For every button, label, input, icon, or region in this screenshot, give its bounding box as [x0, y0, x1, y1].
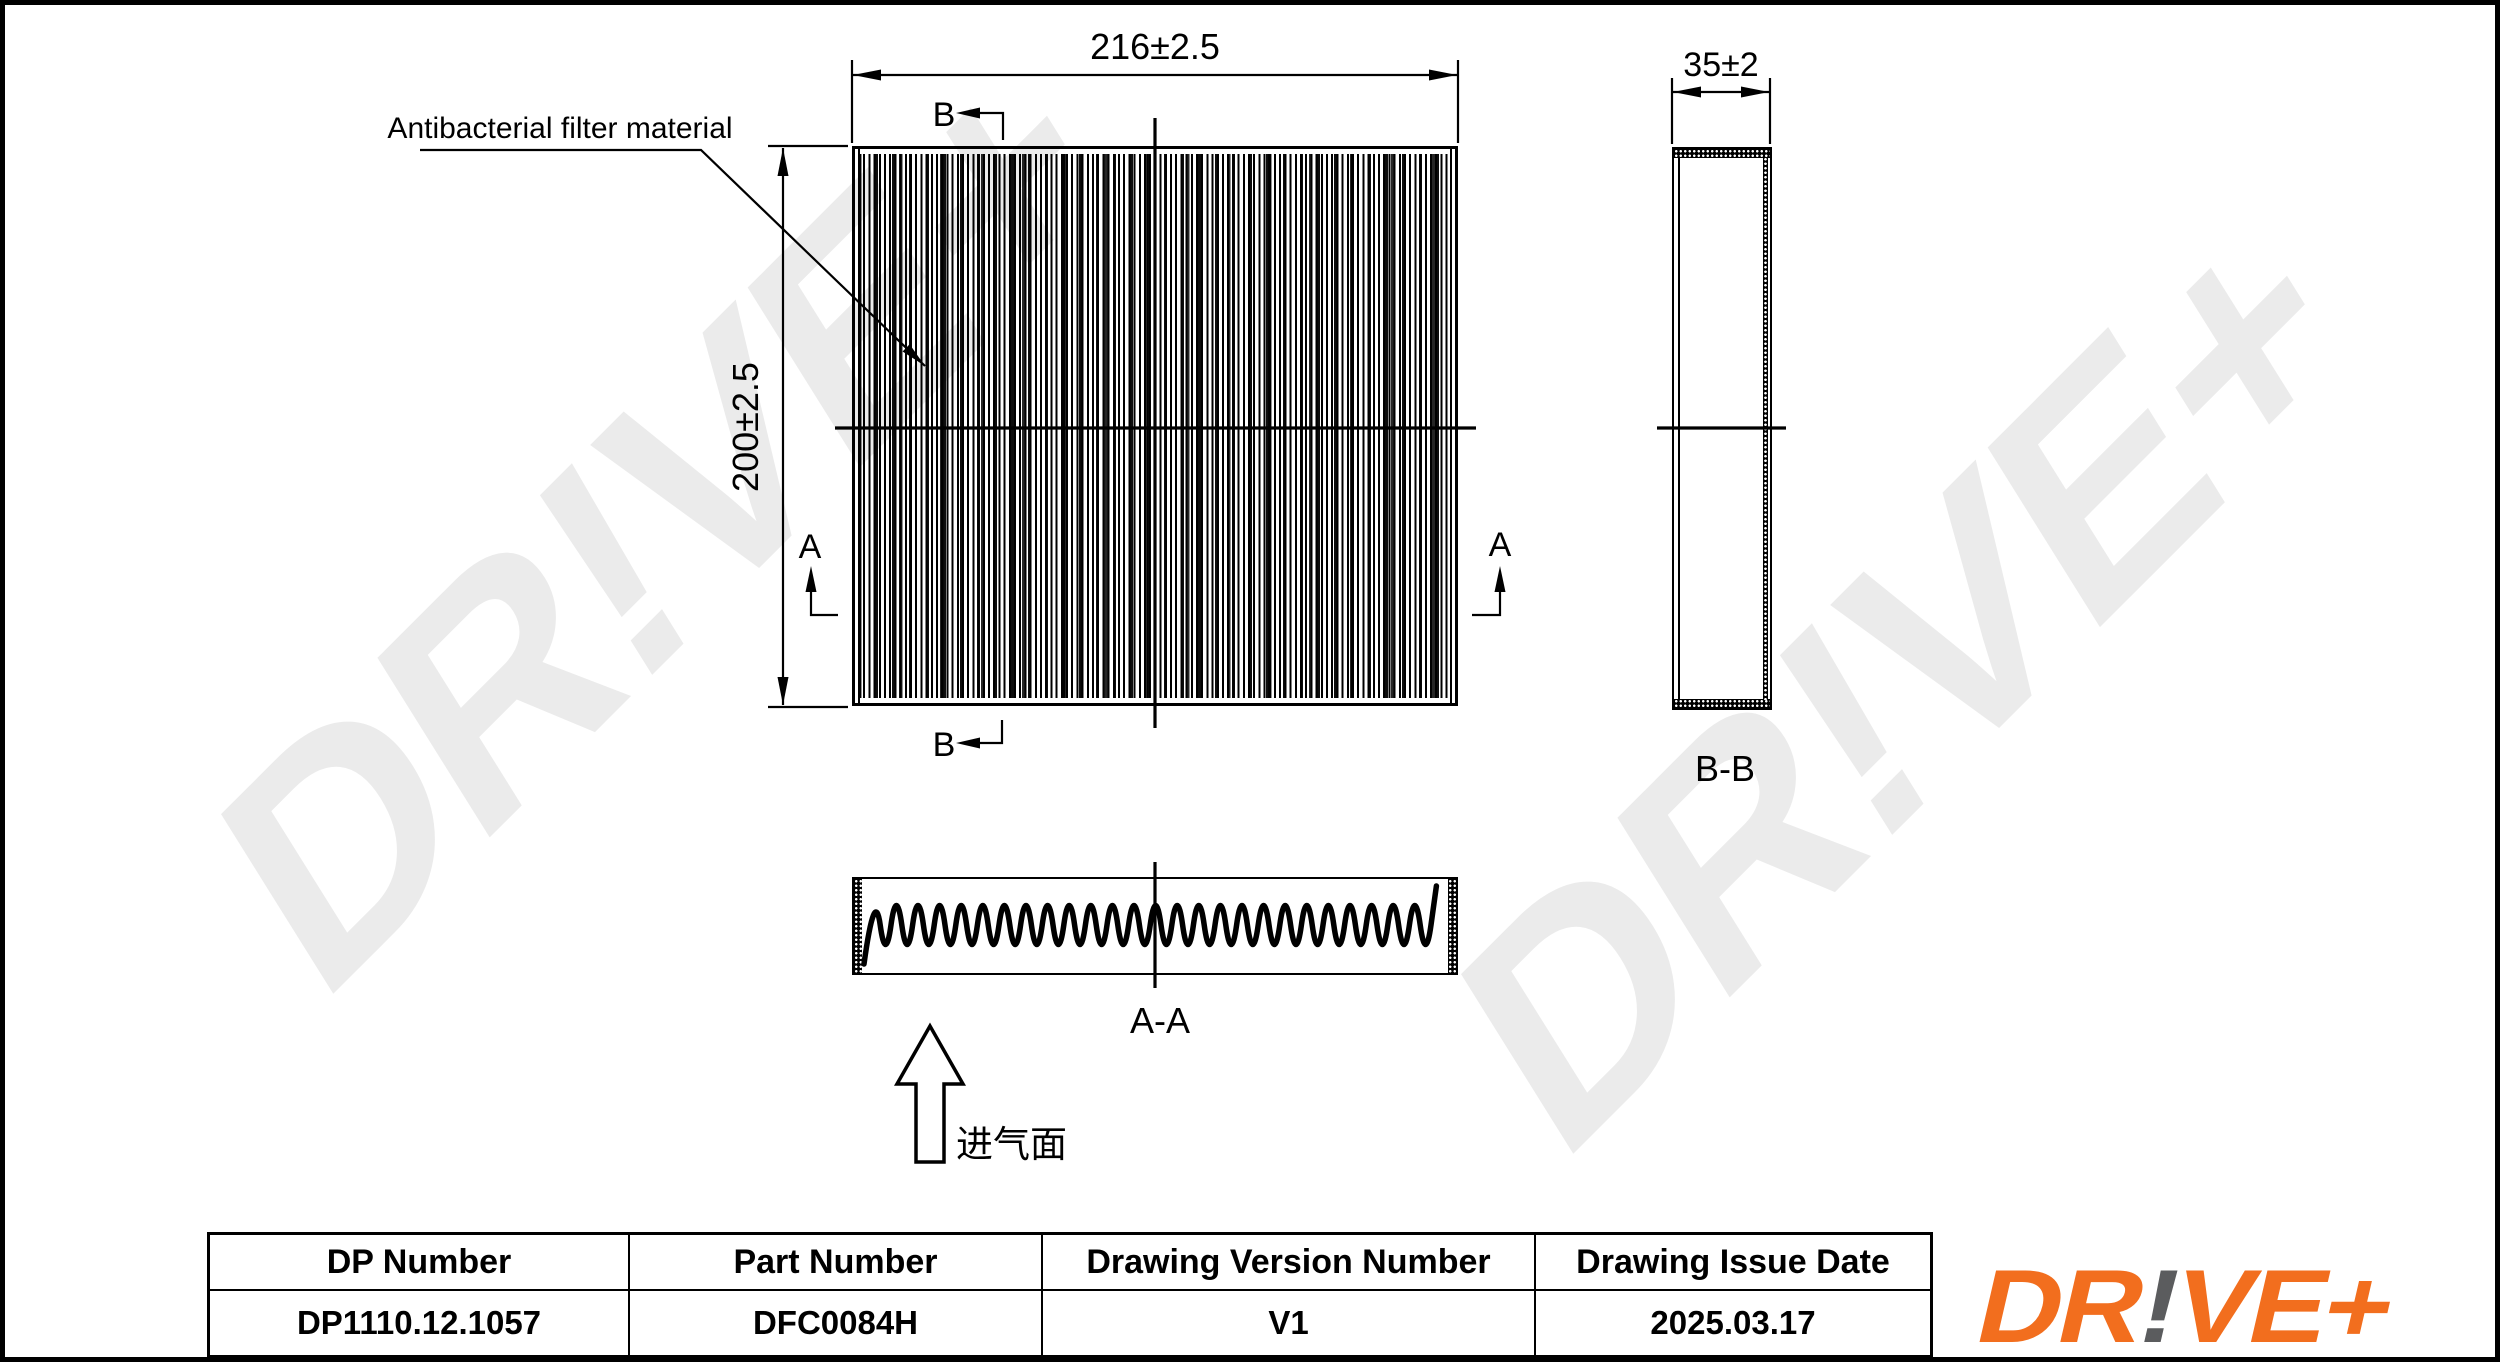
section-letter-b-bottom: B: [933, 726, 956, 765]
part-number-value: DFC0084H: [630, 1291, 1043, 1355]
section-view-bb-label: B-B: [1695, 748, 1755, 790]
material-leader-line: [420, 150, 925, 366]
intake-direction-arrow: [897, 1026, 963, 1162]
dimension-width-label: 216±2.5: [1090, 26, 1220, 68]
dimension-depth-label: 35±2: [1683, 46, 1758, 85]
drawing-version-value: V1: [1043, 1291, 1536, 1355]
column-header: Drawing Version Number: [1043, 1235, 1536, 1291]
section-letter-a-right: A: [1489, 526, 1512, 565]
section-letter-b-top: B: [933, 96, 956, 135]
arrowheads: [778, 70, 1770, 749]
drawing-issue-date-value: 2025.03.17: [1536, 1291, 1930, 1355]
title-block-table: DP Number Part Number Drawing Version Nu…: [207, 1232, 1933, 1358]
drawing-linework: [0, 0, 2500, 1362]
logo-text-dr: DR: [1966, 1249, 2154, 1362]
section-marker-a-right: [1472, 590, 1500, 615]
dimension-height-label: 200±2.5: [725, 362, 767, 492]
section-marker-a-left: [811, 590, 838, 615]
column-header: DP Number: [210, 1235, 630, 1291]
drive-plus-logo: DR!VE+: [1966, 1248, 2404, 1362]
section-view-aa-label: A-A: [1130, 1000, 1190, 1042]
intake-side-label: 进气面: [956, 1114, 1067, 1168]
section-letter-a-left: A: [799, 528, 822, 567]
section-marker-b-bottom: [978, 720, 1002, 743]
column-header: Part Number: [630, 1235, 1043, 1291]
column-header: Drawing Issue Date: [1536, 1235, 1930, 1291]
logo-text-ve-plus: VE+: [2163, 1249, 2403, 1362]
technical-drawing-page: DR!VE+ DR!VE+: [0, 0, 2500, 1362]
section-marker-b-top: [978, 113, 1003, 140]
dp-number-value: DP1110.12.1057: [210, 1291, 630, 1355]
pleat-profile-zigzag: [864, 886, 1436, 964]
material-label: Antibacterial filter material: [387, 112, 732, 146]
